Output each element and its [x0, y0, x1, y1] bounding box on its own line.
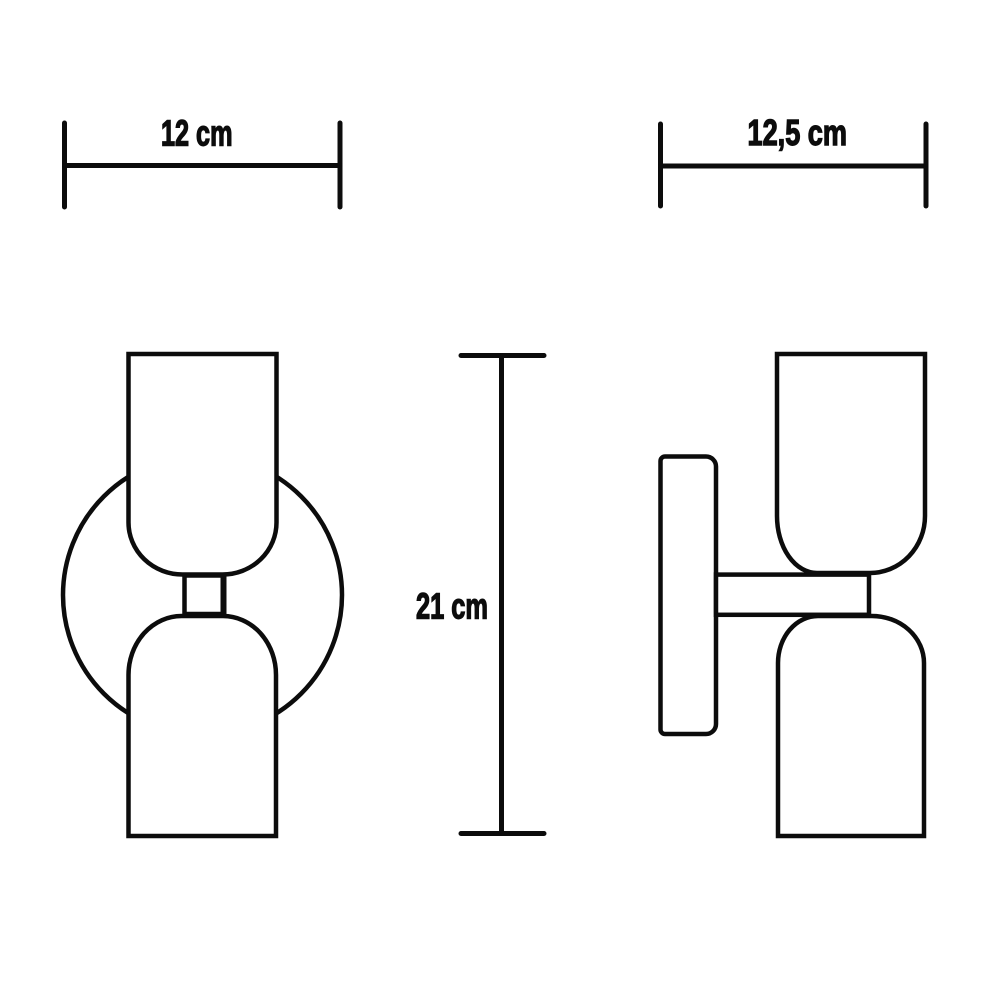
svg-text:12,5 cm: 12,5 cm — [748, 112, 848, 153]
svg-text:12 cm: 12 cm — [161, 113, 233, 154]
svg-text:21 cm: 21 cm — [416, 586, 488, 627]
